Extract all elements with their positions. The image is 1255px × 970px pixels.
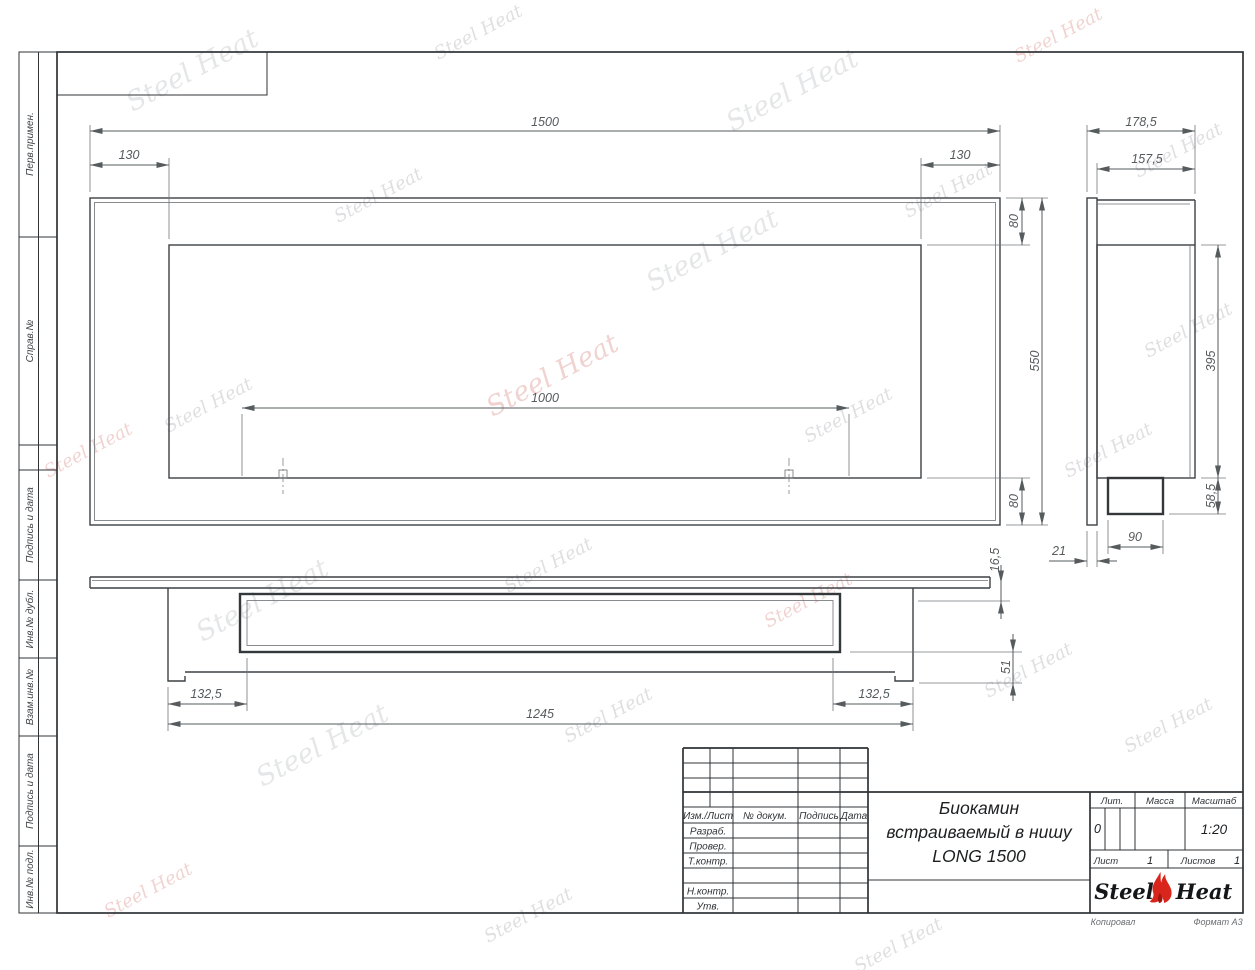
dim-front-mount-span: 1000 <box>531 391 559 405</box>
title-block: Изм./Лист № докум. Подпись Дата Разраб. … <box>683 748 1243 927</box>
side-view: 178,5 157,5 395 58,5 90 21 <box>1049 115 1226 567</box>
dim-side-body-height: 395 <box>1204 351 1218 372</box>
dim-side-burner-height: 58,5 <box>1204 484 1218 508</box>
side-flange <box>1087 198 1097 525</box>
doc-title-line-1: Биокамин <box>939 798 1020 818</box>
tb-sheets-value: 1 <box>1234 855 1240 867</box>
dim-front-height: 550 <box>1028 351 1042 372</box>
tb-header-izm-list: Изм./Лист <box>683 811 733 822</box>
burner-slot <box>240 594 840 652</box>
doc-title-line-2: встраиваемый в нишу <box>886 822 1072 842</box>
side-burner-box <box>1108 478 1163 514</box>
tb-header-podpis: Подпись <box>799 811 839 822</box>
top-left-stamp-box <box>57 52 267 95</box>
band-label-sprav-no: Справ.№ <box>25 319 36 362</box>
band-label-inv-dubl: Инв.№ дубл. <box>24 590 36 649</box>
dim-bottom-left-inset: 132,5 <box>190 687 221 701</box>
dim-front-right-offset: 130 <box>950 148 971 162</box>
tb-header-data: Дата <box>840 811 868 822</box>
tb-header-doc-no: № докум. <box>743 811 787 822</box>
dim-bottom-body-width: 1245 <box>526 707 554 721</box>
tb-row-nkontr: Н.контр. <box>687 887 729 898</box>
tb-lit-label: Лит. <box>1100 796 1123 807</box>
tb-sheet-label: Лист <box>1093 856 1119 867</box>
logo-word-heat: Heat <box>1175 879 1233 904</box>
steel-heat-logo: Steel Heat <box>1094 872 1232 904</box>
tb-mass-label: Масса <box>1146 796 1174 807</box>
dim-side-flange-depth: 21 <box>1051 544 1066 558</box>
footer-copied: Копировал <box>1091 917 1136 927</box>
tb-scale-value: 1:20 <box>1201 822 1228 837</box>
tb-lit-value: 0 <box>1094 822 1101 836</box>
sheet-frame: Перв.примен. Справ.№ Подпись и дата Инв.… <box>19 52 1243 913</box>
dim-side-burner-depth: 90 <box>1128 530 1142 544</box>
dim-side-overall-depth: 178,5 <box>1125 115 1156 129</box>
dim-bottom-right-inset: 132,5 <box>858 687 889 701</box>
drawing-sheet: Steel Heat Steel Heat Steel Heat Steel H… <box>0 0 1255 970</box>
tb-row-prover: Провер. <box>689 842 726 853</box>
band-label-perv-primen: Перв.примен. <box>25 112 36 176</box>
band-label-podpis-data-1: Подпись и дата <box>25 487 36 563</box>
dim-front-left-offset: 130 <box>119 148 140 162</box>
front-view: 1500 130 130 80 550 80 1 <box>90 115 1048 525</box>
dim-side-body-depth: 157,5 <box>1131 152 1162 166</box>
dim-front-width: 1500 <box>531 115 559 129</box>
dim-bottom-flange-thickness: 16,5 <box>988 548 1002 572</box>
dim-front-bottom-offset: 80 <box>1007 494 1021 508</box>
flame-icon <box>1150 872 1172 903</box>
bottom-view: 16,5 51 132,5 1245 132,5 <box>90 548 1022 731</box>
band-label-vzam-inv: Взам.инв.№ <box>25 669 36 725</box>
tb-scale-label: Масштаб <box>1192 796 1237 807</box>
tb-row-tkontr: Т.контр. <box>688 857 728 868</box>
tb-row-utv: Утв. <box>696 902 720 913</box>
side-body <box>1097 245 1195 478</box>
drawing-canvas: Перв.примен. Справ.№ Подпись и дата Инв.… <box>0 0 1255 970</box>
doc-title-line-3: LONG 1500 <box>932 846 1026 866</box>
foot-right <box>895 672 913 681</box>
band-label-inv-podl: Инв.№ подл. <box>25 849 36 908</box>
dim-front-top-offset: 80 <box>1007 214 1021 228</box>
foot-left <box>168 672 185 681</box>
footer-format: Формат A3 <box>1193 917 1242 927</box>
tb-sheets-label: Листов <box>1180 856 1216 867</box>
logo-word-steel: Steel <box>1094 879 1154 904</box>
tb-row-razrab: Разраб. <box>690 826 726 838</box>
tb-sheet-value: 1 <box>1147 855 1153 867</box>
band-label-podpis-data-2: Подпись и дата <box>25 753 36 829</box>
dim-bottom-under-depth: 51 <box>999 660 1013 674</box>
